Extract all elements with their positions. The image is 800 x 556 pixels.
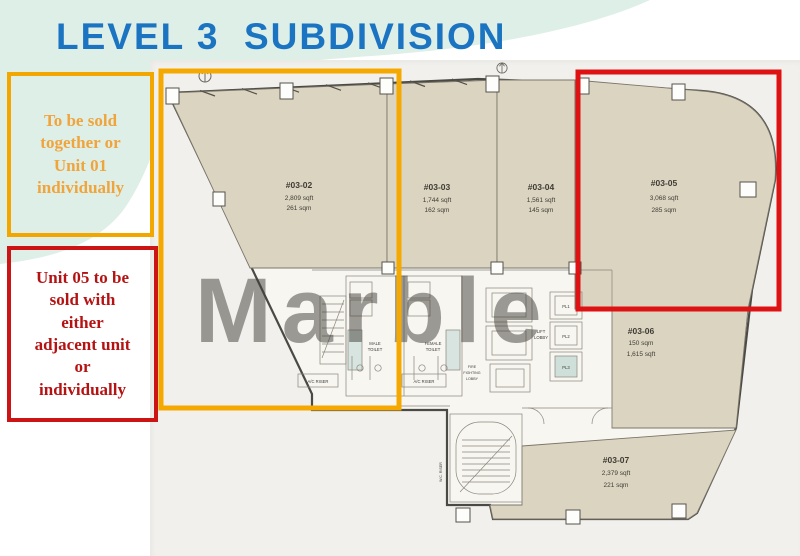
note-sold-together: To be sold together or Unit 01 individua… xyxy=(7,72,154,237)
unit-sqm: 261 sqm xyxy=(287,205,312,212)
unit-sqm: 221 sqm xyxy=(604,482,629,489)
unit-id: #03-02 xyxy=(286,180,313,190)
unit-03-02-label: #03-02 2,809 sqft 261 sqm xyxy=(285,180,314,212)
page-title: LEVEL 3 SUBDIVISION xyxy=(56,16,507,58)
unit-sqft: 1,561 sqft xyxy=(527,197,556,204)
wc-riser-label: W.C. RISER xyxy=(439,462,443,482)
unit-sqft: 1,744 sqft xyxy=(423,197,452,204)
ac-riser-label: A/C RISER xyxy=(414,379,435,384)
unit-03-02-area xyxy=(168,84,387,268)
unit-03-03-label: #03-03 1,744 sqft 162 sqm xyxy=(423,182,452,214)
fire-lobby-label: FIRE xyxy=(468,365,477,369)
unit-sqm: 285 sqm xyxy=(652,207,677,214)
exit-symbol-icon xyxy=(497,63,507,73)
fire-lobby-label: FIGHTING xyxy=(463,371,480,375)
ac-riser-label: A/C RISER xyxy=(308,379,329,384)
lift-pl1-label: PL1 xyxy=(562,304,570,309)
unit-id: #03-07 xyxy=(603,455,630,465)
unit-03-07-label: #03-07 2,379 sqft 221 sqm xyxy=(602,455,631,489)
watermark: Marble xyxy=(195,260,552,362)
unit-sqft: 1,615 sqft xyxy=(627,351,656,358)
unit-03-03-area xyxy=(387,80,497,268)
lift-pl2-label: PL2 xyxy=(562,334,570,339)
unit-03-04-label: #03-04 1,561 sqft 145 sqm xyxy=(527,182,556,214)
unit-id: #03-05 xyxy=(651,178,678,188)
fire-lobby-label: LOBBY xyxy=(466,377,479,381)
unit-03-06-label: #03-06 150 sqm 1,615 sqft xyxy=(627,326,656,358)
unit-id: #03-04 xyxy=(528,182,555,192)
unit-sqft: 2,809 sqft xyxy=(285,195,314,202)
unit-sqm: 150 sqm xyxy=(629,340,654,347)
unit-03-05-label: #03-05 3,068 sqft 285 sqm xyxy=(650,178,679,214)
lift-pl3-label: PL3 xyxy=(562,365,570,370)
slide: #03-02 2,809 sqft 261 sqm #03-03 1,744 s… xyxy=(0,0,800,556)
unit-id: #03-03 xyxy=(424,182,451,192)
unit-sqm: 145 sqm xyxy=(529,207,554,214)
note-unit-05: Unit 05 to be sold with either adjacent … xyxy=(7,246,158,422)
unit-03-04-area xyxy=(497,80,575,268)
unit-sqft: 2,379 sqft xyxy=(602,470,631,477)
unit-sqft: 3,068 sqft xyxy=(650,195,679,202)
unit-id: #03-06 xyxy=(628,326,655,336)
unit-sqm: 162 sqm xyxy=(425,207,450,214)
